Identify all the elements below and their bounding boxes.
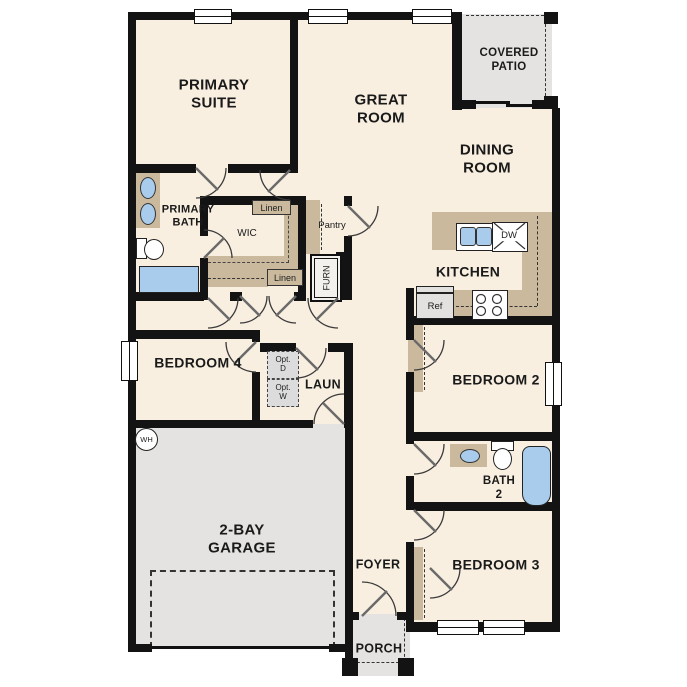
dishwasher-label: DW	[500, 230, 518, 242]
room-label-wic: WIC	[237, 228, 256, 240]
door-swings-overlay	[0, 0, 687, 687]
floor-plan: Ref FURN Opt. D Opt. W WH Linen Linen	[0, 0, 687, 687]
room-label-porch: PORCH	[356, 641, 403, 656]
room-label-laundry: LAUN	[305, 377, 341, 392]
room-label-covered-patio: COVEREDPATIO	[480, 46, 539, 74]
room-label-bedroom3: BEDROOM 3	[452, 556, 540, 573]
room-label-foyer: FOYER	[356, 557, 401, 572]
room-label-kitchen: KITCHEN	[436, 263, 500, 280]
room-label-bedroom2: BEDROOM 2	[452, 371, 540, 388]
room-label-primary-bath: PRIMARYBATH	[162, 204, 214, 231]
room-label-primary-suite: PRIMARYSUITE	[179, 77, 250, 114]
room-label-bedroom4: BEDROOM 4	[154, 354, 242, 371]
room-label-garage: 2-BAYGARAGE	[208, 522, 276, 559]
room-label-dining-room: DININGROOM	[460, 142, 514, 179]
room-label-pantry: Pantry	[318, 220, 345, 232]
room-label-great-room: GREATROOM	[355, 92, 408, 129]
room-label-bath2: BATH2	[483, 474, 515, 502]
